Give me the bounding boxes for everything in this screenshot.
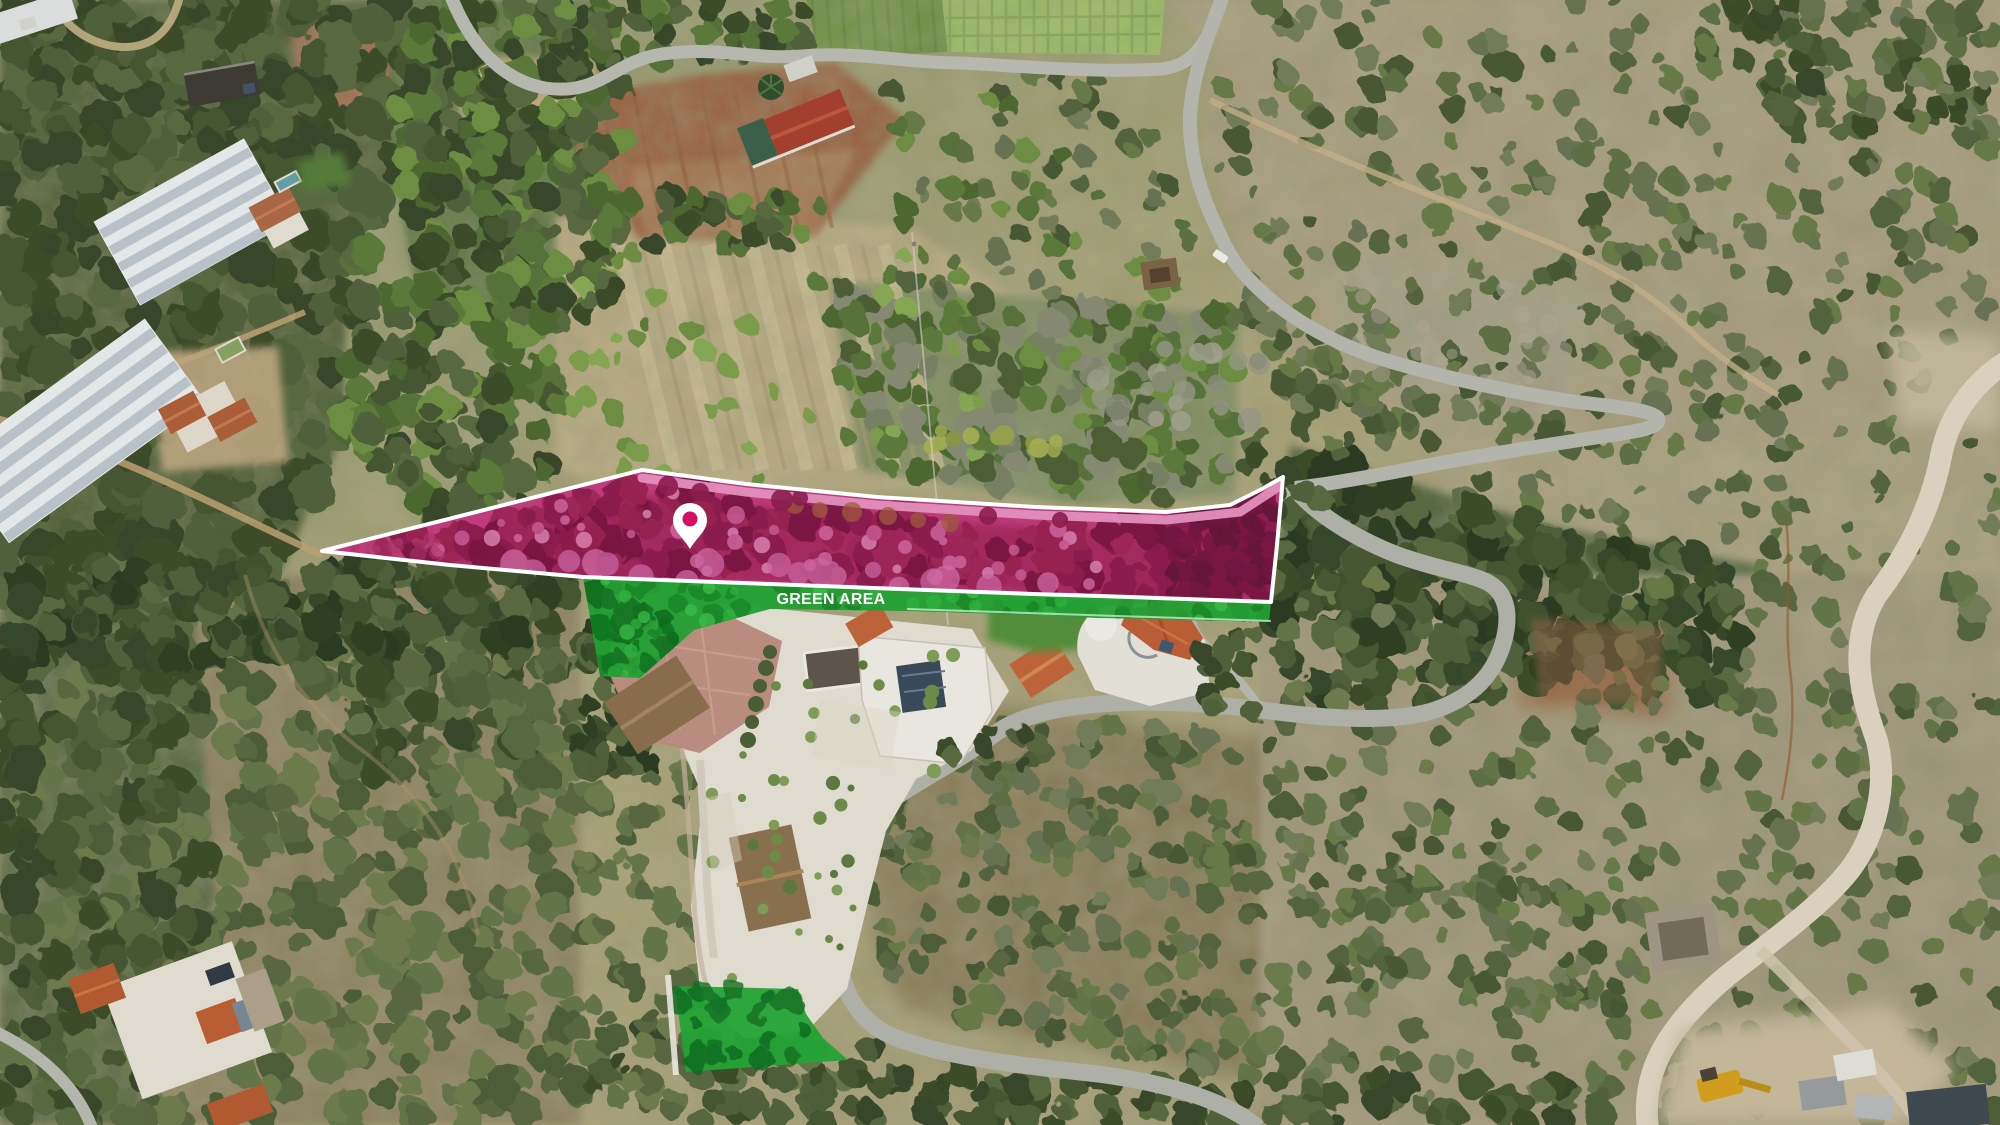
svg-text:GREEN AREA: GREEN AREA	[776, 591, 885, 608]
